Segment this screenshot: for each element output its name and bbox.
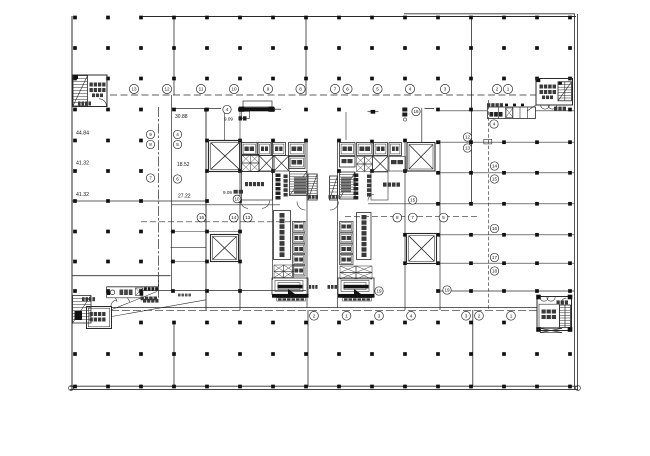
svg-text:13: 13 [131,87,137,92]
svg-text:13: 13 [465,146,471,151]
svg-text:7: 7 [149,176,152,181]
svg-text:41.32: 41.32 [76,161,89,167]
svg-text:12: 12 [164,87,170,92]
svg-text:5: 5 [176,142,179,147]
svg-text:8: 8 [299,87,302,92]
svg-text:17: 17 [492,255,498,260]
svg-text:4: 4 [176,132,179,137]
svg-text:1: 1 [345,313,348,318]
svg-text:2: 2 [496,87,499,92]
svg-text:18: 18 [492,269,498,274]
svg-text:3: 3 [378,313,381,318]
svg-text:15: 15 [410,198,416,203]
svg-text:2: 2 [478,313,481,318]
svg-text:10: 10 [234,197,240,202]
svg-text:4: 4 [493,122,496,127]
svg-text:3: 3 [465,313,468,318]
svg-text:5: 5 [376,87,379,92]
svg-text:19: 19 [376,289,382,294]
svg-text:41.32: 41.32 [76,192,89,198]
svg-text:7: 7 [411,215,414,220]
svg-text:9: 9 [267,87,270,92]
svg-text:12: 12 [465,135,471,140]
svg-text:1: 1 [507,87,510,92]
svg-text:8: 8 [396,215,399,220]
svg-text:9.09: 9.09 [224,117,233,122]
svg-text:4: 4 [226,107,229,112]
svg-text:16: 16 [199,215,205,220]
svg-text:15: 15 [492,177,498,182]
svg-text:6: 6 [176,177,179,182]
svg-text:7: 7 [334,87,337,92]
svg-text:4: 4 [410,313,413,318]
svg-text:18.52: 18.52 [177,162,190,168]
svg-text:13: 13 [245,215,251,220]
svg-text:14: 14 [231,215,237,220]
svg-text:4: 4 [409,87,412,92]
svg-text:27.22: 27.22 [178,194,191,200]
svg-text:1: 1 [510,313,513,318]
svg-text:30.88: 30.88 [175,114,188,120]
svg-text:44.84: 44.84 [76,131,89,137]
svg-text:16: 16 [492,226,498,231]
svg-text:14: 14 [492,164,498,169]
svg-text:8: 8 [149,142,152,147]
svg-text:10: 10 [231,87,237,92]
svg-text:3: 3 [444,87,447,92]
svg-text:6: 6 [346,87,349,92]
svg-text:19: 19 [444,288,450,293]
svg-text:9.09: 9.09 [223,190,232,195]
svg-text:5: 5 [442,215,445,220]
svg-text:11: 11 [199,87,204,92]
svg-text:2: 2 [313,313,316,318]
svg-text:9: 9 [149,132,152,137]
svg-text:16: 16 [413,109,419,114]
